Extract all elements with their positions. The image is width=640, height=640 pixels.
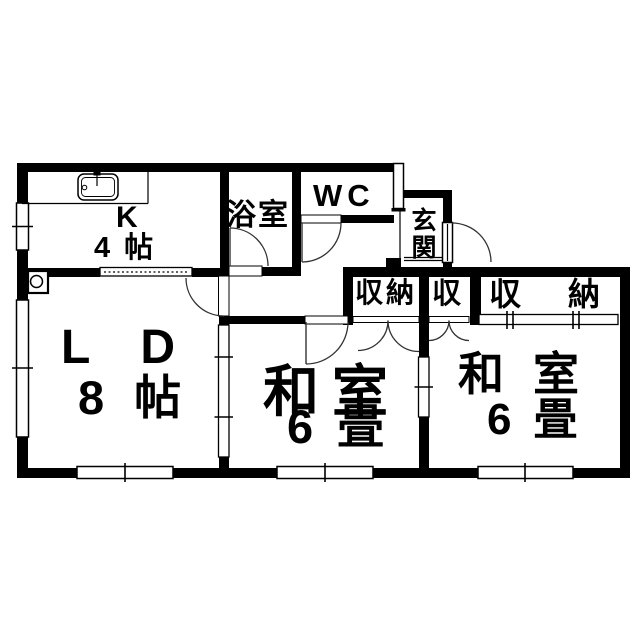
- kitchen-size-label: 4帖: [94, 234, 167, 263]
- floor-plan: K 4帖 浴室 WC 玄関 収納 収 収納 LD 8帖 和室 6畳 和室 6畳: [0, 0, 640, 640]
- water-heater-icon: [31, 276, 43, 288]
- closet-1-doors: [353, 317, 419, 323]
- kitchen-label: K: [116, 203, 138, 233]
- water-heater: [28, 271, 48, 293]
- japanese-room-2-label: 和室: [458, 351, 608, 397]
- closet-1-label: 収納: [355, 279, 417, 307]
- bath-door-opening: [229, 266, 262, 276]
- bath-door-arc: [230, 228, 268, 266]
- front-door-arc: [452, 223, 491, 262]
- japanese-room-1-door-arc: [306, 322, 348, 364]
- living-door-opening: [219, 276, 230, 316]
- bathroom-label: 浴室: [226, 201, 290, 231]
- japanese-room-1-size-label: 6畳: [287, 403, 408, 450]
- closet-3-sliding-door: [479, 315, 618, 325]
- entrance-label: 玄関: [410, 208, 438, 262]
- faucet-icon: [94, 170, 101, 176]
- toilet-door-opening: [301, 215, 341, 223]
- toilet-door-arc: [302, 223, 341, 262]
- japanese-room-1-door-opening: [305, 316, 348, 324]
- floor-plan-drawing: [0, 0, 640, 640]
- closet-2-label: 収: [432, 280, 461, 309]
- japanese-room-2-size-label: 6畳: [487, 398, 599, 442]
- toilet-label: WC: [313, 180, 375, 211]
- living-dining-size-label: 8帖: [78, 374, 211, 421]
- kitchen-counter: [22, 170, 148, 204]
- closet-3-label: 収納: [489, 278, 640, 310]
- living-dining-label: LD: [61, 324, 225, 372]
- toilet-window: [394, 164, 404, 209]
